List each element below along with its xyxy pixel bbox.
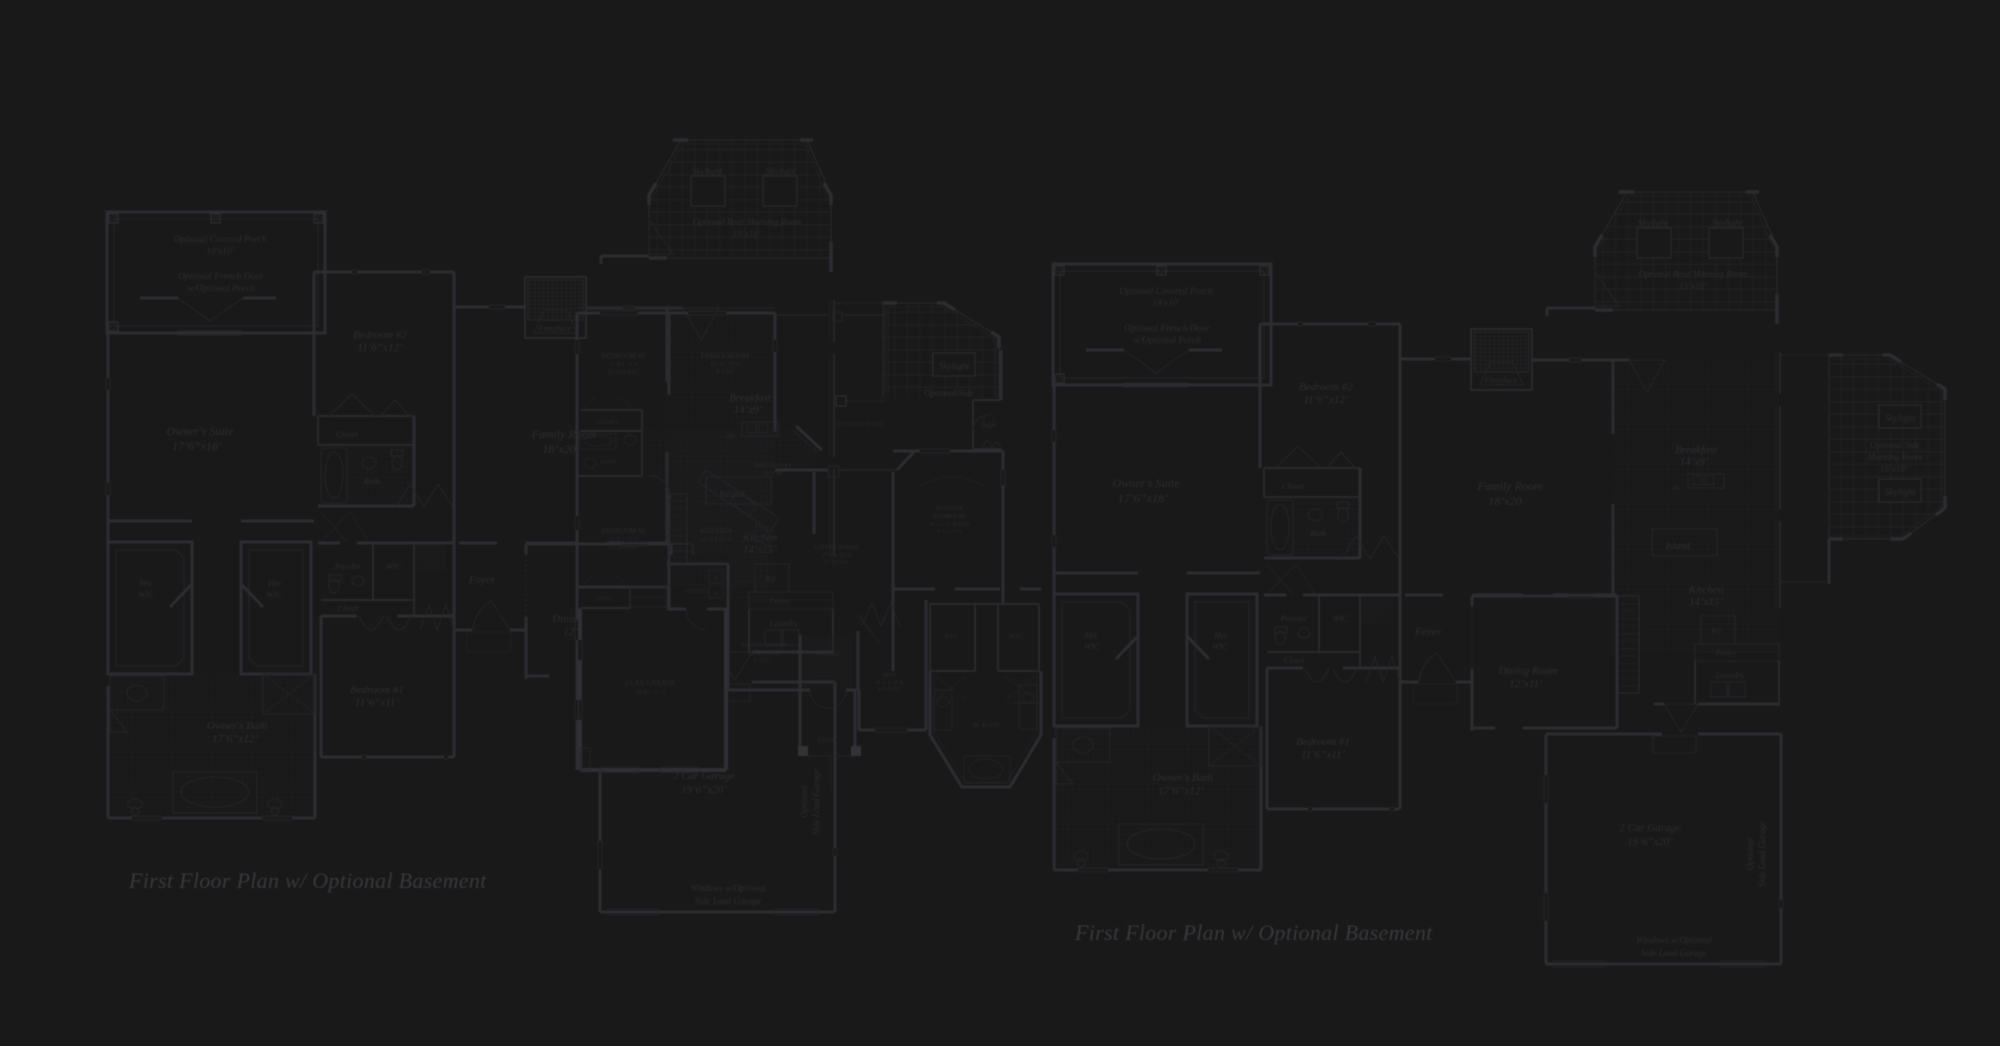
svg-text:Optional French Door: Optional French Door: [178, 272, 264, 282]
svg-text:Skylight: Skylight: [1885, 414, 1916, 424]
svg-text:Optional Side: Optional Side: [924, 388, 974, 398]
svg-text:17’6”x12’: 17’6”x12’: [212, 733, 258, 745]
svg-text:W.I.C.: W.I.C.: [1009, 634, 1025, 640]
svg-text:Laundry: Laundry: [1715, 670, 1745, 680]
svg-text:11’6”x11’: 11’6”x11’: [1301, 749, 1346, 761]
svg-text:11'-2 x 12'-8: 11'-2 x 12'-8: [875, 680, 903, 686]
svg-text:Laundry: Laundry: [769, 618, 799, 628]
svg-text:17'-0 x 12'-0: 17'-0 x 12'-0: [821, 553, 851, 559]
svg-text:M. BATH: M. BATH: [973, 722, 999, 729]
svg-text:BEDROOM #2: BEDROOM #2: [601, 527, 645, 535]
svg-text:Skylight: Skylight: [1638, 219, 1669, 229]
svg-text:18’x20: 18’x20: [1488, 494, 1521, 508]
svg-text:Skylight: Skylight: [766, 167, 797, 177]
svg-text:Kitchen: Kitchen: [1688, 584, 1724, 596]
svg-text:DINING ROOM: DINING ROOM: [742, 642, 786, 649]
svg-text:Optional Side: Optional Side: [1870, 440, 1920, 450]
svg-text:Owner's Suite: Owner's Suite: [167, 424, 235, 438]
svg-text:9' CEILING: 9' CEILING: [608, 545, 638, 551]
svg-text:18’x20: 18’x20: [542, 442, 575, 456]
svg-text:Powder: Powder: [334, 561, 362, 571]
svg-text:Dining Room: Dining Room: [1498, 665, 1558, 677]
svg-text:ENTRY: ENTRY: [818, 738, 838, 744]
svg-text:CLOSET: CLOSET: [595, 597, 614, 602]
svg-text:COVERED PATIO: COVERED PATIO: [834, 421, 884, 428]
svg-text:Side Load Garage: Side Load Garage: [695, 896, 761, 906]
svg-text:WIC: WIC: [138, 589, 154, 599]
svg-text:First Floor Plan w/ Optional: First Floor Plan w/ Optional Basement: [1074, 920, 1433, 945]
svg-text:Pantry: Pantry: [769, 596, 791, 605]
svg-text:Windows w/Optional: Windows w/Optional: [1636, 935, 1712, 945]
svg-text:D: D: [714, 591, 718, 597]
svg-text:11’6”x11’: 11’6”x11’: [355, 697, 400, 709]
svg-text:Her: Her: [1213, 630, 1228, 640]
svg-text:Her: Her: [267, 578, 282, 588]
svg-text:Bath: Bath: [364, 476, 380, 486]
svg-text:LIVING ROOM: LIVING ROOM: [814, 544, 858, 551]
svg-text:CLOSET: CLOSET: [598, 420, 619, 426]
svg-text:Island: Island: [1665, 541, 1692, 552]
svg-text:Side Load Garage: Side Load Garage: [1757, 821, 1767, 887]
svg-text:17’6”x12’: 17’6”x12’: [1158, 785, 1204, 797]
svg-text:17’6”x18’: 17’6”x18’: [1118, 491, 1168, 505]
svg-text:dw: dw: [1673, 483, 1682, 492]
svg-text:2 CAR GARAGE: 2 CAR GARAGE: [625, 679, 676, 687]
svg-text:His: His: [138, 578, 152, 588]
svg-text:11'-0 CLG: 11'-0 CLG: [823, 560, 849, 566]
svg-text:19’6”x20’: 19’6”x20’: [681, 784, 727, 796]
svg-text:Foyer: Foyer: [468, 574, 496, 586]
svg-text:9' CLG: 9' CLG: [753, 658, 771, 664]
svg-text:WIC: WIC: [266, 589, 282, 599]
svg-text:Ref.: Ref.: [1710, 626, 1723, 635]
svg-text:Optional French Door: Optional French Door: [1124, 324, 1210, 334]
svg-text:Optional Covered Porch: Optional Covered Porch: [173, 235, 266, 245]
svg-text:18'x10': 18'x10': [206, 247, 234, 257]
svg-text:Optional Rear Morning Room: Optional Rear Morning Room: [1639, 269, 1748, 279]
svg-text:11’6”x12’: 11’6”x12’: [357, 342, 402, 354]
svg-text:Optional: Optional: [799, 786, 809, 819]
svg-text:w/Optional Porch: w/Optional Porch: [187, 284, 255, 294]
svg-text:18'x10': 18'x10': [1152, 299, 1180, 309]
svg-text:14’x9’: 14’x9’: [734, 404, 763, 416]
svg-text:Bedroom #2: Bedroom #2: [353, 329, 407, 341]
svg-text:MASTER: MASTER: [936, 505, 963, 512]
svg-text:DEN: DEN: [882, 672, 896, 679]
svg-text:His: His: [1084, 630, 1098, 640]
svg-text:BREAKFAST: BREAKFAST: [754, 462, 791, 469]
svg-text:Bath: Bath: [1310, 528, 1326, 538]
svg-text:15’x10’: 15’x10’: [1880, 464, 1908, 474]
svg-text:14’x15’: 14’x15’: [1689, 596, 1724, 608]
svg-text:Owner's Bath: Owner's Bath: [1153, 772, 1214, 784]
svg-text:Breakfast: Breakfast: [1675, 444, 1718, 456]
svg-text:BEDROOM: BEDROOM: [933, 513, 966, 520]
svg-text:12'-0 x 11'-0: 12'-0 x 11'-0: [608, 537, 638, 543]
svg-text:16'-0 x 13'-0 AND: 16'-0 x 13'-0 AND: [929, 522, 970, 528]
svg-text:Optional Covered Porch: Optional Covered Porch: [1119, 287, 1212, 297]
svg-text:Skylight: Skylight: [692, 167, 723, 177]
svg-text:12'-4 x 14'-2: 12'-4 x 14'-2: [748, 651, 778, 657]
svg-text:WIC: WIC: [386, 561, 402, 571]
svg-text:Windows w/Optional: Windows w/Optional: [690, 883, 766, 893]
svg-text:Breakfast: Breakfast: [729, 392, 772, 404]
svg-text:First Floor Plan w/ Optional: First Floor Plan w/ Optional Basement: [128, 868, 487, 893]
svg-text:Side Load Garage: Side Load Garage: [811, 769, 821, 835]
svg-text:19’6”x20’: 19’6”x20’: [1627, 836, 1673, 848]
svg-text:10' COFD: 10' COFD: [878, 687, 901, 693]
svg-text:15’x10’: 15’x10’: [1679, 281, 1707, 291]
svg-text:Owner's Suite: Owner's Suite: [1113, 476, 1181, 490]
svg-text:Owner's Bath: Owner's Bath: [207, 720, 268, 732]
svg-text:16'-4 x 19'-6: 16'-4 x 19'-6: [710, 362, 740, 368]
svg-text:11'-0 x 13'-0: 11'-0 x 13'-0: [608, 362, 638, 368]
svg-text:Side Load Garage: Side Load Garage: [1641, 948, 1707, 958]
svg-text:9' CLG: 9' CLG: [716, 369, 734, 375]
svg-text:15’x10’: 15’x10’: [733, 229, 761, 239]
svg-text:10'-0 x 13'-6: 10'-0 x 13'-6: [701, 537, 731, 543]
svg-text:17’6”x18’: 17’6”x18’: [172, 439, 222, 453]
svg-text:Closet: Closet: [336, 429, 358, 439]
svg-text:WIC: WIC: [1212, 641, 1228, 651]
svg-text:Morning Room: Morning Room: [1867, 452, 1923, 462]
svg-text:Skylight: Skylight: [939, 362, 970, 372]
svg-text:Powder: Powder: [1280, 613, 1308, 623]
svg-text:WIC: WIC: [1084, 641, 1100, 651]
svg-text:2 Car Garage: 2 Car Garage: [1619, 822, 1681, 834]
svg-text:Bedroom #1: Bedroom #1: [350, 684, 404, 696]
svg-text:FAMILY ROOM: FAMILY ROOM: [701, 352, 750, 360]
svg-text:KITCHEN: KITCHEN: [701, 527, 732, 535]
svg-text:Family Room: Family Room: [1477, 479, 1543, 493]
svg-text:WIC: WIC: [1332, 613, 1348, 623]
svg-text:9' CEILING: 9' CEILING: [608, 370, 638, 376]
svg-text:Bedroom #2: Bedroom #2: [1299, 381, 1353, 393]
svg-text:W.I.C.: W.I.C.: [944, 634, 960, 640]
svg-text:Bedroom #1: Bedroom #1: [1296, 736, 1350, 748]
svg-text:UTILITY: UTILITY: [685, 589, 709, 595]
svg-text:Pantry: Pantry: [1715, 648, 1737, 657]
svg-text:9'-0 x 13'-0: 9'-0 x 13'-0: [937, 529, 962, 535]
svg-text:FOYER: FOYER: [818, 651, 840, 658]
svg-text:12’x11’: 12’x11’: [1509, 678, 1543, 690]
svg-text:11’6”x12’: 11’6”x12’: [1303, 394, 1348, 406]
svg-text:Fireplace: Fireplace: [538, 323, 572, 333]
svg-text:Skylight: Skylight: [1885, 488, 1916, 498]
svg-text:Fireplace: Fireplace: [1484, 375, 1518, 385]
svg-text:w/Optional Porch: w/Optional Porch: [1133, 336, 1201, 346]
svg-text:Closet: Closet: [1284, 656, 1305, 665]
svg-text:BATH: BATH: [981, 423, 997, 429]
svg-text:14’x9’: 14’x9’: [1680, 456, 1709, 468]
svg-text:Optional Rear Morning Room: Optional Rear Morning Room: [693, 217, 802, 227]
svg-text:BEDROOM #3: BEDROOM #3: [601, 352, 645, 360]
svg-text:BATH: BATH: [600, 460, 616, 466]
svg-text:Closet: Closet: [338, 604, 359, 613]
svg-text:Foyer: Foyer: [1414, 626, 1442, 638]
svg-text:20'-4 x 21'-2: 20'-4 x 21'-2: [635, 690, 665, 696]
svg-text:Skylight: Skylight: [1712, 219, 1743, 229]
svg-text:Closet: Closet: [1282, 481, 1304, 491]
svg-text:Optional: Optional: [1745, 838, 1755, 871]
